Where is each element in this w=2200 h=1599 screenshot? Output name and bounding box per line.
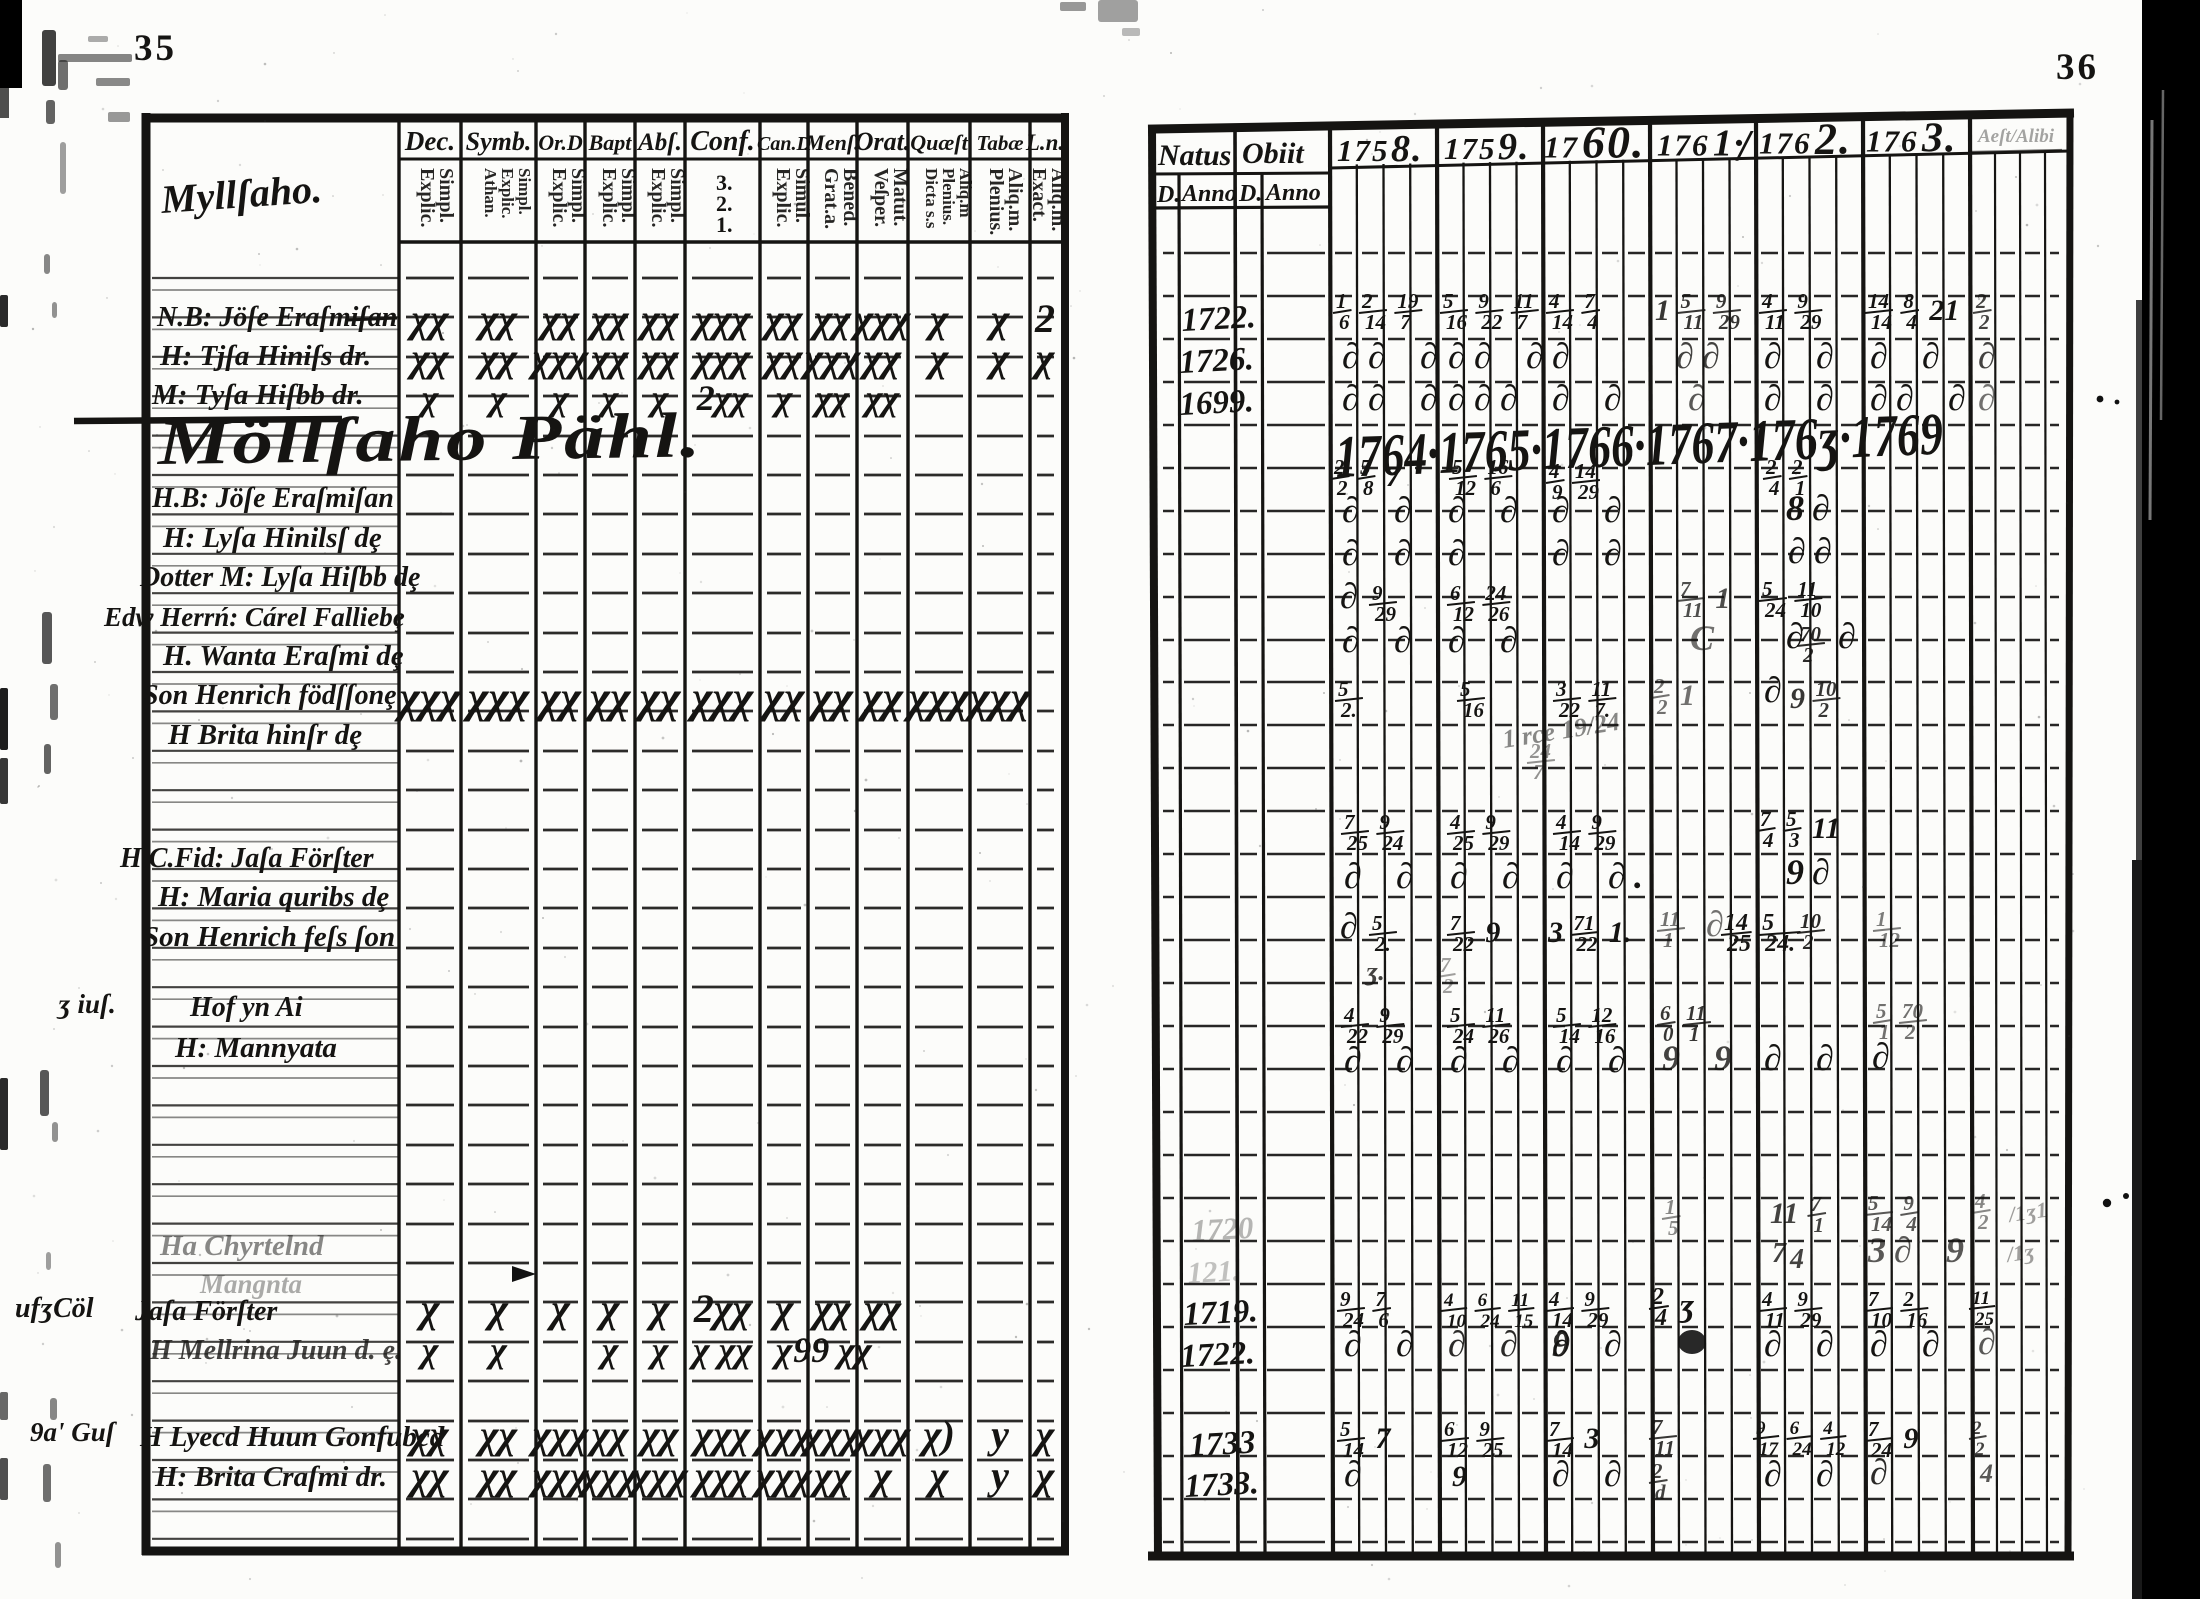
svg-text:Explic.: Explic. — [647, 168, 669, 227]
svg-text:∂: ∂ — [1344, 856, 1362, 896]
svg-text:∂: ∂ — [1420, 336, 1438, 376]
svg-text:121.: 121. — [1187, 1254, 1241, 1290]
svg-text:D.: D. — [1238, 181, 1262, 207]
svg-text:∂: ∂ — [1870, 1452, 1888, 1492]
svg-text:χχχ: χχχ — [528, 335, 590, 380]
svg-text:∂: ∂ — [1816, 378, 1834, 418]
svg-text:χχχ: χχχ — [800, 1412, 862, 1457]
svg-text:∂: ∂ — [1814, 531, 1832, 571]
svg-text:6: 6 — [1339, 310, 1350, 334]
svg-text:H: Brita Craſmi dr.: H: Brita Craſmi dr. — [154, 1461, 387, 1493]
svg-text:14: 14 — [1871, 310, 1892, 334]
svg-text:2: 2 — [1974, 1439, 1985, 1460]
svg-text:∂: ∂ — [1450, 856, 1468, 896]
svg-text:∂: ∂ — [1706, 904, 1724, 944]
svg-text:8: 8 — [1363, 476, 1374, 500]
svg-text:Mangnta: Mangnta — [199, 1269, 302, 1299]
svg-text:H: Tjſa Hiniſs dr.: H: Tjſa Hiniſs dr. — [159, 340, 371, 372]
svg-text:Grat.a.: Grat.a. — [820, 168, 842, 229]
svg-text:∂: ∂ — [1604, 533, 1622, 573]
svg-text:∂: ∂ — [1344, 1040, 1362, 1080]
svg-text:H. Wanta Eraſmi dȩ: H. Wanta Eraſmi dȩ — [162, 640, 404, 672]
svg-text:χχ: χχ — [859, 335, 903, 380]
svg-text:H: Maria quribs dȩ: H: Maria quribs dȩ — [157, 881, 389, 913]
svg-text:∂: ∂ — [1500, 378, 1518, 418]
svg-text:1726.: 1726. — [1179, 341, 1255, 381]
svg-text:11: 11 — [1684, 310, 1704, 334]
svg-text:1733: 1733 — [1189, 1425, 1257, 1464]
svg-text:11: 11 — [1655, 1436, 1675, 1460]
svg-text:∂: ∂ — [1396, 856, 1414, 896]
svg-text:9: 9 — [1790, 682, 1805, 715]
svg-text:9.: 9. — [1498, 126, 1531, 168]
svg-text:99 χχ: 99 χχ — [793, 1330, 873, 1370]
svg-text:Aliq.m.: Aliq.m. — [1004, 168, 1026, 231]
svg-text:Matut.: Matut. — [889, 168, 911, 226]
svg-text:Aliq.m: Aliq.m — [956, 168, 975, 218]
svg-text:14: 14 — [1365, 310, 1386, 334]
svg-text:Hof yn Ai: Hof yn Ai — [189, 992, 303, 1023]
svg-text:χχ: χχ — [406, 1453, 450, 1498]
svg-text:Plenius.: Plenius. — [939, 168, 958, 225]
svg-text:L.n.: L.n. — [1025, 130, 1064, 155]
svg-text:∂: ∂ — [1608, 856, 1626, 896]
svg-text:ʒ: ʒ — [1677, 1288, 1695, 1324]
svg-text:D.: D. — [1156, 182, 1180, 208]
svg-text:∂: ∂ — [1342, 490, 1360, 530]
svg-text:1699.: 1699. — [1179, 383, 1255, 423]
svg-text:∂: ∂ — [1870, 1324, 1888, 1364]
svg-text:7: 7 — [1533, 760, 1545, 784]
svg-text:χχχ: χχχ — [690, 1412, 752, 1457]
svg-text:Ha Chyrtelnd: Ha Chyrtelnd — [159, 1230, 324, 1262]
svg-text:25: 25 — [1452, 831, 1474, 855]
svg-text:∂: ∂ — [1870, 378, 1888, 418]
svg-text:∂: ∂ — [1448, 378, 1466, 418]
svg-text:Orat.: Orat. — [855, 127, 911, 156]
svg-text:Natus: Natus — [1157, 139, 1231, 172]
svg-text:22: 22 — [1480, 310, 1503, 334]
svg-text:35: 35 — [134, 28, 177, 69]
svg-text:1722.: 1722. — [1181, 299, 1257, 339]
svg-text:∂: ∂ — [1764, 336, 1782, 376]
svg-text:1: 1 — [1655, 294, 1670, 327]
svg-text:∂: ∂ — [1552, 336, 1570, 376]
svg-text:∂: ∂ — [1556, 1040, 1574, 1080]
svg-text:∂: ∂ — [1604, 1454, 1622, 1494]
svg-text:16: 16 — [1463, 698, 1485, 722]
svg-text:∂: ∂ — [1526, 336, 1544, 376]
svg-text:∂: ∂ — [1502, 1040, 1520, 1080]
svg-text:H: Mannyata: H: Mannyata — [174, 1032, 337, 1064]
svg-text:1: 1 — [1715, 582, 1730, 615]
svg-text:29: 29 — [1799, 310, 1822, 334]
svg-text:χχχ: χχχ — [690, 335, 752, 380]
svg-text:11: 11 — [1511, 1290, 1529, 1311]
svg-text:χχχ: χχχ — [690, 1453, 752, 1498]
svg-text:Anno: Anno — [1180, 181, 1237, 207]
svg-text:14: 14 — [1552, 310, 1573, 334]
svg-text:χχ: χχ — [859, 1286, 903, 1331]
svg-text:9: 9 — [1903, 1422, 1918, 1455]
svg-text:∂: ∂ — [1702, 336, 1720, 376]
svg-text:∂: ∂ — [1604, 490, 1622, 530]
svg-text:χχχ: χχχ — [850, 1412, 912, 1457]
svg-text:6: 6 — [1478, 1290, 1488, 1311]
svg-text:ʒ.: ʒ. — [1364, 957, 1385, 986]
svg-text:χχ: χχ — [636, 1412, 680, 1457]
svg-text:2: 2 — [1904, 1020, 1916, 1044]
svg-text:1.: 1. — [1609, 916, 1632, 949]
svg-text:∂: ∂ — [1342, 620, 1360, 660]
svg-text:∂: ∂ — [1342, 533, 1360, 573]
svg-text:2χχ: 2χχ — [693, 1286, 753, 1331]
svg-text:∂: ∂ — [1368, 378, 1386, 418]
svg-text:3: 3 — [1547, 916, 1563, 949]
svg-text:Explic.: Explic. — [416, 168, 438, 227]
svg-text:17: 17 — [1544, 129, 1579, 164]
svg-text:9: 9 — [1756, 1418, 1766, 1439]
svg-text:/1ʒ: /1ʒ — [2003, 1238, 2036, 1267]
svg-text:2.: 2. — [1374, 932, 1391, 956]
svg-text:Aeſt/Alibi: Aeſt/Alibi — [1977, 126, 2055, 147]
svg-text:4: 4 — [1762, 828, 1774, 852]
svg-text:Son Henrich feſs ſon: Son Henrich feſs ſon — [143, 921, 395, 953]
svg-text:χχ: χχ — [758, 673, 806, 722]
svg-text:χχχ: χχχ — [800, 335, 862, 380]
svg-text:N.B: Jöſe Eraſmiſan: N.B: Jöſe Eraſmiſan — [156, 302, 397, 333]
svg-text:χ): χ) — [918, 1412, 955, 1457]
svg-text:∂: ∂ — [1978, 336, 1996, 376]
svg-text:∂: ∂ — [1450, 1040, 1468, 1080]
svg-text:χχ: χχ — [636, 335, 680, 380]
svg-text:∂: ∂ — [1922, 1324, 1940, 1364]
svg-text:1722.: 1722. — [1180, 1335, 1256, 1375]
svg-text:∂: ∂ — [1368, 336, 1386, 376]
svg-text:2: 2 — [1971, 1418, 1982, 1439]
svg-text:16: 16 — [1446, 310, 1468, 334]
svg-text:∂: ∂ — [1872, 1036, 1890, 1076]
svg-text:3: 3 — [1583, 1422, 1599, 1455]
svg-text:Athan.: Athan. — [481, 168, 500, 218]
svg-text:11: 11 — [1972, 1288, 1990, 1309]
svg-text:2χχ: 2χχ — [696, 378, 750, 418]
svg-text:7: 7 — [1772, 1238, 1787, 1269]
svg-text:χχχ: χχχ — [528, 1453, 590, 1498]
svg-text:9: 9 — [1714, 1038, 1732, 1078]
svg-text:Explic.: Explic. — [772, 168, 794, 227]
svg-text:∂: ∂ — [1816, 336, 1834, 376]
svg-text:∂: ∂ — [1812, 852, 1830, 892]
svg-text:11: 11 — [1812, 812, 1840, 845]
svg-text:χχ: χχ — [806, 673, 854, 722]
svg-text:Jaſa Förſter: Jaſa Förſter — [134, 1296, 278, 1327]
svg-text:∂: ∂ — [1552, 533, 1570, 573]
svg-text:12: 12 — [1447, 1438, 1469, 1462]
svg-text:ʒ iuſ.: ʒ iuſ. — [56, 989, 116, 1019]
svg-text:Tabæ: Tabæ — [976, 131, 1023, 155]
svg-text:Dicta s.s: Dicta s.s — [922, 168, 941, 229]
svg-text:χ χχ: χ χχ — [688, 1330, 753, 1370]
svg-text:∂: ∂ — [1394, 533, 1412, 573]
svg-text:25: 25 — [1346, 831, 1368, 855]
svg-text:∂: ∂ — [1764, 670, 1782, 710]
svg-text:7: 7 — [1386, 460, 1402, 493]
svg-text:∂: ∂ — [1764, 1454, 1782, 1494]
svg-text:H Mellrina Juun d. ȩ.: H Mellrina Juun d. ȩ. — [149, 1335, 402, 1366]
svg-text:6: 6 — [1378, 1308, 1389, 1332]
svg-text:4: 4 — [1822, 1418, 1833, 1439]
svg-text:∂: ∂ — [1948, 378, 1966, 418]
svg-text:2: 2 — [1802, 930, 1814, 954]
svg-text:Explic.: Explic. — [498, 168, 517, 219]
svg-text:1719.: 1719. — [1183, 1293, 1259, 1333]
svg-text:Dec.: Dec. — [404, 126, 455, 156]
svg-text:Can.D: Can.D — [757, 133, 811, 155]
svg-text:14: 14 — [1559, 831, 1580, 855]
svg-text:ufʒCöl: ufʒCöl — [15, 1293, 94, 1324]
svg-text:χχ: χχ — [475, 335, 519, 380]
svg-text:∂: ∂ — [1788, 531, 1806, 571]
svg-text:29: 29 — [1487, 831, 1510, 855]
svg-text:9: 9 — [1786, 852, 1804, 892]
svg-text:3: 3 — [1788, 828, 1800, 852]
svg-text:∂: ∂ — [1816, 1454, 1834, 1494]
svg-text:χχ: χχ — [586, 335, 630, 380]
svg-text:χχ: χχ — [861, 378, 901, 418]
svg-text:∂: ∂ — [1816, 1324, 1834, 1364]
svg-text:36: 36 — [2056, 47, 2099, 88]
svg-text:∂: ∂ — [1552, 378, 1570, 418]
svg-text:29: 29 — [1577, 480, 1600, 504]
svg-text:χχ: χχ — [760, 335, 804, 380]
svg-text:4: 4 — [1905, 310, 1917, 334]
svg-text:∂: ∂ — [1894, 1230, 1912, 1270]
svg-text:∂: ∂ — [1552, 1324, 1570, 1364]
svg-text:176: 176 — [1657, 127, 1710, 162]
svg-text:∂: ∂ — [1604, 378, 1622, 418]
svg-text:∂: ∂ — [1978, 378, 1996, 418]
svg-text:χχ: χχ — [406, 1412, 450, 1457]
svg-text:1: 1 — [1680, 679, 1695, 712]
svg-text:2: 2 — [1818, 698, 1830, 722]
svg-text:∂: ∂ — [1552, 490, 1570, 530]
svg-text:4: 4 — [1979, 1459, 1993, 1488]
svg-text:∂: ∂ — [1344, 1324, 1362, 1364]
svg-text:1720: 1720 — [1191, 1210, 1255, 1248]
svg-text:∂: ∂ — [1764, 1038, 1782, 1078]
svg-text:7: 7 — [1517, 310, 1529, 334]
svg-text:176: 176 — [1759, 126, 1812, 161]
svg-text:9: 9 — [1946, 1230, 1964, 1270]
svg-text:∂: ∂ — [1978, 1322, 1996, 1362]
svg-text:y: y — [987, 1412, 1009, 1457]
svg-text:24: 24 — [1764, 598, 1786, 622]
svg-text:∂: ∂ — [1838, 616, 1856, 656]
svg-text:H Brita hinſr dȩ: H Brita hinſr dȩ — [167, 719, 362, 751]
svg-text:χχχ: χχχ — [751, 1453, 813, 1498]
svg-text:24: 24 — [1381, 831, 1403, 855]
svg-text:Symb.: Symb. — [466, 127, 532, 156]
svg-text:∂: ∂ — [1688, 378, 1706, 418]
svg-text:2: 2 — [1977, 1210, 1989, 1234]
svg-text:∂: ∂ — [1500, 620, 1518, 660]
svg-text:∂: ∂ — [1812, 488, 1830, 528]
svg-text:∂: ∂ — [1556, 856, 1574, 896]
svg-text:χχ: χχ — [809, 1453, 853, 1498]
svg-text:Simpl.: Simpl. — [666, 168, 688, 223]
svg-text:Bened.: Bened. — [839, 168, 861, 226]
svg-text:Plenius.: Plenius. — [985, 168, 1007, 235]
svg-text:∂: ∂ — [1396, 1324, 1414, 1364]
svg-text:∂: ∂ — [1816, 1038, 1834, 1078]
svg-text:χχ: χχ — [534, 673, 582, 722]
svg-text:6: 6 — [1790, 1418, 1800, 1439]
svg-text:11: 11 — [1765, 310, 1785, 334]
svg-text:∂: ∂ — [1608, 1040, 1626, 1080]
svg-text:∂: ∂ — [1448, 1324, 1466, 1364]
svg-text:χχ: χχ — [856, 673, 904, 722]
svg-text:9: 9 — [1662, 1038, 1680, 1078]
svg-text:Simul.: Simul. — [791, 168, 813, 223]
svg-text:22: 22 — [1576, 932, 1599, 956]
svg-text:χχχ: χχχ — [528, 1412, 590, 1457]
svg-text:χχ: χχ — [475, 1412, 519, 1457]
svg-text:∂: ∂ — [1394, 490, 1412, 530]
svg-text:Explic.: Explic. — [548, 168, 570, 227]
svg-text:∂: ∂ — [1396, 1040, 1414, 1080]
svg-text:∂: ∂ — [1764, 1324, 1782, 1364]
svg-text:8.: 8. — [1391, 128, 1424, 170]
svg-text:Möllſaho Pähl.: Möllſaho Pähl. — [156, 399, 703, 478]
svg-text:175: 175 — [1337, 133, 1390, 168]
svg-text:Dotter M: Lyſa Hiſbb dȩ: Dotter M: Lyſa Hiſbb dȩ — [139, 562, 420, 593]
svg-text:175: 175 — [1444, 131, 1497, 166]
svg-text:∂: ∂ — [1474, 378, 1492, 418]
svg-text:χχ: χχ — [811, 378, 851, 418]
svg-text:∂: ∂ — [1676, 336, 1694, 376]
svg-text:∂: ∂ — [1500, 1324, 1518, 1364]
svg-text:∂: ∂ — [1342, 336, 1360, 376]
svg-text:Abſ.: Abſ. — [636, 129, 682, 156]
svg-text:1: 1 — [1814, 1213, 1825, 1237]
svg-text:H.B: Jöſe Eraſmiſan: H.B: Jöſe Eraſmiſan — [151, 483, 394, 514]
svg-text:χχχ: χχχ — [963, 673, 1032, 722]
svg-text:∂: ∂ — [1552, 1454, 1570, 1494]
svg-text:∂: ∂ — [1870, 336, 1888, 376]
svg-text:y: y — [987, 1453, 1009, 1498]
svg-text:Menſ.: Menſ. — [804, 130, 859, 155]
svg-text:8: 8 — [1786, 488, 1804, 528]
svg-text:11: 11 — [1770, 1197, 1798, 1230]
svg-text:∂: ∂ — [1474, 336, 1492, 376]
svg-text:Explic.: Explic. — [598, 168, 620, 227]
svg-text:1: 1 — [1689, 1022, 1700, 1046]
svg-text:χχχ: χχχ — [902, 673, 971, 722]
svg-text:∂: ∂ — [1896, 378, 1914, 418]
svg-text:Simpl.: Simpl. — [515, 168, 534, 215]
svg-text:χχχ: χχχ — [686, 673, 755, 722]
svg-text:2.: 2. — [1340, 698, 1357, 722]
svg-text:∂: ∂ — [1764, 378, 1782, 418]
svg-text:21: 21 — [1928, 294, 1959, 327]
svg-text:∂: ∂ — [1500, 490, 1518, 530]
svg-text:29: 29 — [1718, 310, 1741, 334]
svg-text:H.C.Fid: Jaſa Förſter: H.C.Fid: Jaſa Förſter — [119, 843, 375, 874]
svg-text:4: 4 — [1768, 476, 1780, 500]
svg-text:∂: ∂ — [1922, 336, 1940, 376]
svg-text:∂: ∂ — [1502, 856, 1520, 896]
svg-text:∂: ∂ — [1448, 336, 1466, 376]
svg-text:29: 29 — [1593, 831, 1616, 855]
svg-text:Edw Herrń: Cárel Falliebȩ: Edw Herrń: Cárel Falliebȩ — [103, 602, 405, 632]
svg-text:4: 4 — [1586, 310, 1598, 334]
svg-text:2: 2 — [1802, 643, 1814, 667]
svg-text:25: 25 — [1481, 1438, 1503, 1462]
svg-text:C: C — [1690, 618, 1715, 658]
svg-text:∂: ∂ — [1340, 576, 1358, 616]
svg-text:Conf.: Conf. — [690, 126, 755, 157]
svg-text:4: 4 — [1789, 1244, 1804, 1275]
svg-text:Bapt: Bapt — [588, 130, 633, 155]
svg-text:9aʹ Guſ: 9aʹ Guſ — [30, 1417, 118, 1447]
svg-text:∂: ∂ — [1448, 490, 1466, 530]
svg-text:χχχ: χχχ — [627, 1453, 689, 1498]
svg-text:7: 7 — [1375, 1422, 1391, 1455]
svg-text:Quæſt: Quæſt — [910, 130, 968, 155]
svg-text:2: 2 — [1442, 974, 1454, 998]
svg-text:∂: ∂ — [1604, 1324, 1622, 1364]
svg-text:Veſper.: Veſper. — [870, 168, 892, 227]
svg-text:1733.: 1733. — [1184, 1465, 1260, 1505]
svg-text:.: . — [1634, 856, 1643, 896]
svg-text:3: 3 — [1867, 1230, 1886, 1270]
svg-text:χχχ: χχχ — [393, 673, 462, 722]
svg-text:χχ: χχ — [809, 1286, 853, 1331]
svg-text:∂: ∂ — [1344, 1454, 1362, 1494]
svg-text:d: d — [1655, 1480, 1666, 1504]
svg-text:Or.D: Or.D — [538, 130, 583, 155]
svg-text:Simpl.: Simpl. — [567, 168, 589, 223]
svg-text:χχχ: χχχ — [462, 673, 531, 722]
svg-text:9: 9 — [1452, 1460, 1467, 1493]
svg-text:Obiit: Obiit — [1242, 137, 1305, 170]
svg-text:12: 12 — [1879, 928, 1901, 952]
svg-text:Anno: Anno — [1264, 180, 1321, 206]
svg-text:2: 2 — [1656, 695, 1668, 719]
svg-text:Son Henrich födſſonȩ: Son Henrich födſſonȩ — [143, 680, 397, 711]
svg-text:∂: ∂ — [1394, 620, 1412, 660]
svg-text:Simpl.: Simpl. — [617, 168, 639, 223]
svg-text:5: 5 — [1668, 1216, 1679, 1240]
svg-text:Aliq.m.: Aliq.m. — [1047, 168, 1069, 231]
svg-text:∂: ∂ — [1340, 906, 1358, 946]
svg-text:Exact.: Exact. — [1028, 168, 1050, 222]
svg-text:χχ: χχ — [475, 1453, 519, 1498]
svg-text:∂: ∂ — [1420, 378, 1438, 418]
svg-text:χχ: χχ — [586, 1412, 630, 1457]
svg-text:χχχ: χχχ — [577, 1453, 639, 1498]
svg-text:22: 22 — [1452, 932, 1475, 956]
svg-text:χχ: χχ — [634, 673, 682, 722]
svg-text:χχ: χχ — [584, 673, 632, 722]
svg-text:H: Lyſa Hinilsſ dȩ: H: Lyſa Hinilsſ dȩ — [162, 522, 382, 554]
svg-text:1: 1 — [1663, 928, 1674, 952]
svg-text:24: 24 — [1792, 1439, 1812, 1460]
svg-text:∂: ∂ — [1342, 378, 1360, 418]
svg-text:4: 4 — [1443, 1290, 1454, 1311]
svg-text:1.: 1. — [716, 212, 733, 237]
